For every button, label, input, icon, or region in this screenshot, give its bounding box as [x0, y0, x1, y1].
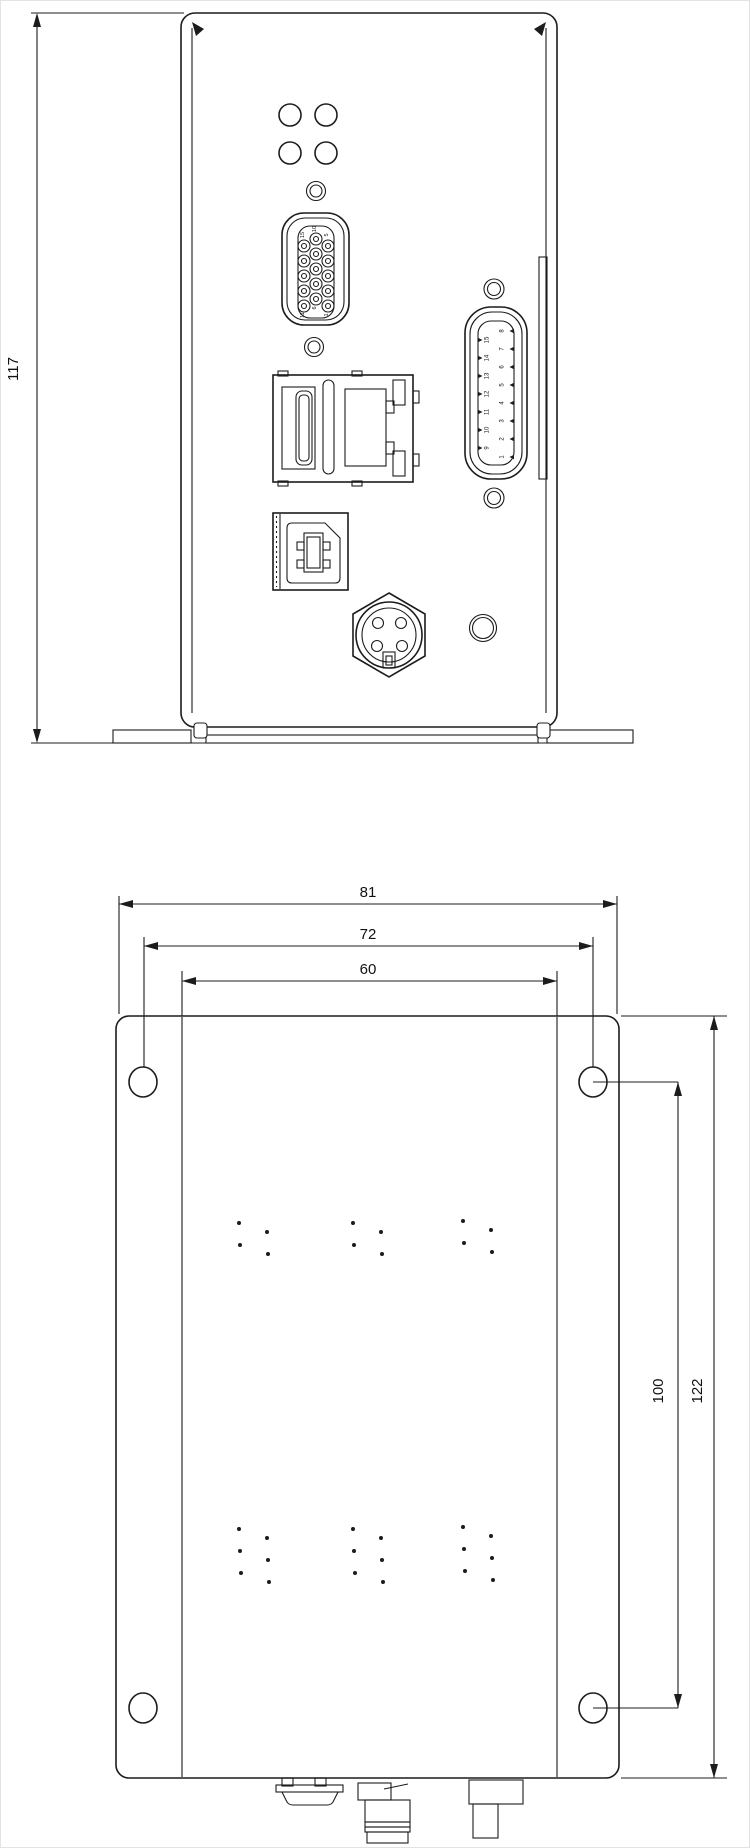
bend-arrow-right-icon [534, 22, 546, 36]
svg-text:8: 8 [500, 329, 506, 333]
drawing-svg: 117 [1, 1, 750, 1848]
svg-text:11: 11 [485, 408, 491, 415]
svg-text:6: 6 [312, 306, 318, 309]
svg-text:4: 4 [500, 401, 506, 405]
dim-label-122: 122 [689, 1378, 706, 1403]
hd15-connector-icon: 15 10 5 11 6 1 [282, 213, 349, 325]
svg-text:1: 1 [500, 455, 506, 459]
power-pin [373, 618, 384, 629]
svg-text:14: 14 [485, 354, 491, 361]
mounting-hole [129, 1067, 157, 1097]
power-din-connector-icon [353, 593, 425, 677]
svg-text:72: 72 [360, 926, 377, 943]
svg-text:13: 13 [485, 372, 491, 379]
svg-text:1: 1 [324, 313, 330, 316]
screw-hole-icon [305, 338, 324, 357]
dim-label-117: 117 [5, 357, 22, 381]
dsub-pins-left: 15 14 13 12 11 10 9 [478, 336, 491, 450]
bottom-view: 81 72 60 [116, 884, 727, 1843]
svg-text:6: 6 [500, 365, 506, 369]
arrowhead-up [33, 13, 41, 27]
svg-text:10: 10 [312, 226, 318, 232]
power-connector-profile-icon [358, 1783, 410, 1843]
power-pin [396, 618, 407, 629]
dimension-height-117: 117 [5, 13, 184, 743]
dimension-width-81: 81 [119, 884, 617, 1014]
svg-text:3: 3 [500, 419, 506, 423]
hd15-pins [298, 233, 334, 312]
panel-hole-icon [470, 615, 497, 642]
vent-hole-clusters [237, 1219, 495, 1584]
svg-text:5: 5 [500, 383, 506, 387]
mounting-feet [31, 723, 633, 743]
arrowhead-down [33, 729, 41, 743]
enclosure-front [31, 13, 633, 743]
bend-arrow-left-icon [192, 22, 204, 36]
power-key-slot [383, 652, 395, 668]
rj45-led-window [393, 380, 405, 405]
svg-text:10: 10 [485, 426, 491, 433]
round-connector-profile-icon [469, 1780, 523, 1838]
dimension-width-60: 60 [182, 961, 557, 1016]
dim-label-100: 100 [650, 1378, 667, 1403]
power-pin [372, 641, 383, 652]
dimension-height-100: 100 [593, 1082, 682, 1708]
power-pin [397, 641, 408, 652]
dimension-width-72: 72 [144, 926, 593, 1067]
usb-b-connector-icon [273, 513, 348, 590]
svg-text:60: 60 [360, 961, 377, 978]
svg-text:15: 15 [300, 232, 306, 238]
svg-text:9: 9 [485, 446, 491, 450]
d-sub-15-connector-icon: 15 14 13 12 11 10 9 8 7 6 5 4 3 2 1 [465, 257, 547, 508]
mounting-plate [116, 1016, 619, 1778]
bottom-edge-connectors [276, 1778, 523, 1843]
usb-a-port [282, 387, 315, 469]
divider-slot [323, 380, 334, 474]
screw-hole-icon [307, 182, 326, 201]
front-view: 117 [5, 13, 633, 743]
svg-text:7: 7 [500, 347, 506, 351]
status-led-icon [279, 104, 337, 164]
svg-text:12: 12 [485, 390, 491, 397]
svg-text:2: 2 [500, 437, 506, 441]
svg-text:5: 5 [324, 233, 330, 236]
svg-text:15: 15 [485, 336, 491, 343]
rj45-led-window [393, 451, 405, 476]
dsub-pins-right: 8 7 6 5 4 3 2 1 [500, 329, 515, 460]
mounting-hole [129, 1693, 157, 1723]
dimension-height-122: 122 [621, 1016, 727, 1778]
svg-text:81: 81 [360, 884, 377, 901]
d-sub-profile-icon [276, 1778, 343, 1805]
svg-text:11: 11 [300, 312, 306, 318]
ethernet-usb-combo-icon [273, 371, 419, 486]
rj45-port [345, 380, 405, 476]
technical-drawing-page: 117 [0, 0, 750, 1848]
